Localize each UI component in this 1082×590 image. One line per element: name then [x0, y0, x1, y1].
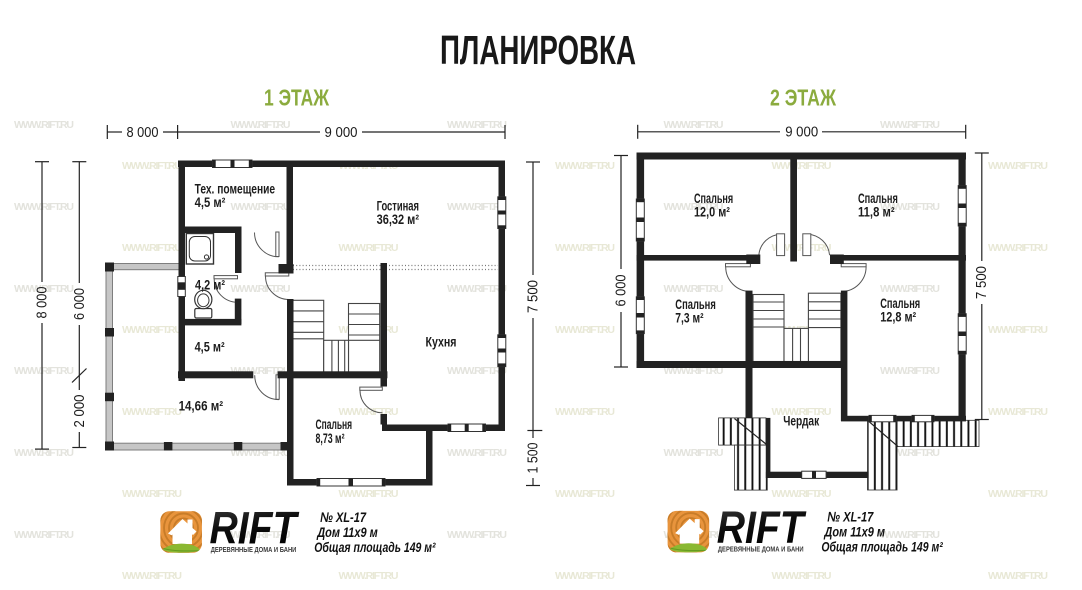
svg-text:9 000: 9 000: [785, 125, 818, 141]
svg-text:№ XL-17: № XL-17: [827, 508, 874, 524]
svg-text:6 000: 6 000: [72, 288, 88, 320]
svg-text:12,8 м²: 12,8 м²: [880, 310, 916, 325]
svg-text:4,5 м²: 4,5 м²: [195, 195, 226, 210]
svg-text:№ XL-17: № XL-17: [320, 509, 367, 525]
svg-text:Чердак: Чердак: [783, 414, 819, 429]
svg-text:8,73 м²: 8,73 м²: [316, 431, 345, 446]
svg-text:12,0 м²: 12,0 м²: [694, 205, 730, 220]
svg-text:8 000: 8 000: [35, 287, 51, 319]
svg-text:7,3 м²: 7,3 м²: [675, 311, 704, 326]
svg-text:Дом 11х9 м: Дом 11х9 м: [824, 523, 886, 539]
svg-text:7 500: 7 500: [974, 266, 990, 299]
svg-text:2 000: 2 000: [72, 395, 88, 428]
svg-text:6 000: 6 000: [614, 275, 630, 307]
svg-text:4,5 м²: 4,5 м²: [195, 340, 225, 355]
svg-text:1 500: 1 500: [526, 443, 542, 474]
svg-text:Общая площадь 149 м²: Общая площадь 149 м²: [314, 539, 436, 555]
svg-text:ДЕРЕВЯННЫЕ ДОМА И БАНИ: ДЕРЕВЯННЫЕ ДОМА И БАНИ: [211, 545, 297, 554]
svg-text:9 000: 9 000: [325, 125, 358, 141]
svg-text:7 500: 7 500: [526, 280, 542, 313]
svg-text:2 ЭТАЖ: 2 ЭТАЖ: [770, 85, 836, 111]
svg-text:4,2 м²: 4,2 м²: [195, 278, 225, 293]
svg-text:1 ЭТАЖ: 1 ЭТАЖ: [264, 85, 329, 111]
svg-text:Дом 11х9 м: Дом 11х9 м: [316, 524, 378, 540]
svg-text:Общая площадь 149 м²: Общая площадь 149 м²: [821, 538, 943, 554]
svg-text:ДЕРЕВЯННЫЕ ДОМА И БАНИ: ДЕРЕВЯННЫЕ ДОМА И БАНИ: [718, 544, 804, 553]
svg-text:14,66 м²: 14,66 м²: [179, 399, 224, 414]
svg-text:Кухня: Кухня: [426, 335, 457, 350]
svg-text:36,32 м²: 36,32 м²: [377, 212, 420, 227]
svg-text:8 000: 8 000: [127, 125, 159, 141]
svg-text:ПЛАНИРОВКА: ПЛАНИРОВКА: [440, 27, 636, 73]
svg-text:11,8 м²: 11,8 м²: [858, 205, 895, 220]
svg-text:Спальня: Спальня: [316, 417, 353, 432]
